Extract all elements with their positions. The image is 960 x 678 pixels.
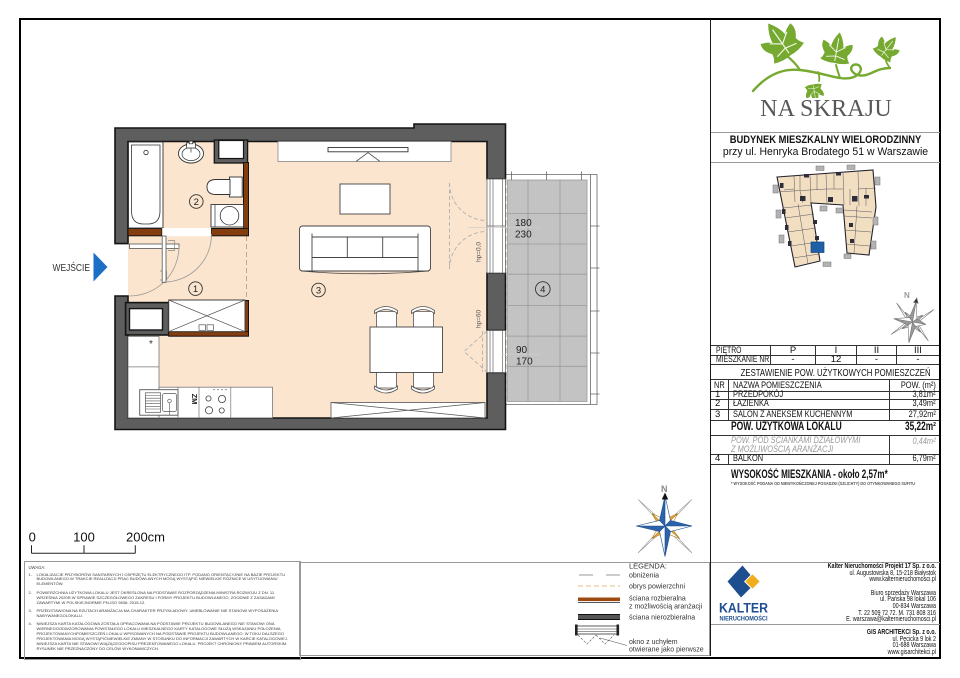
svg-text:otwierane jako pierwsze: otwierane jako pierwsze xyxy=(629,646,704,653)
svg-text:ściana rozbieralna: ściana rozbieralna xyxy=(629,595,686,602)
svg-text:200cm: 200cm xyxy=(126,530,165,545)
svg-text:3: 3 xyxy=(316,286,321,297)
svg-text:0: 0 xyxy=(29,530,36,545)
svg-text:okno z uchyłem: okno z uchyłem xyxy=(629,639,678,646)
svg-text:obrys powierzchni: obrys powierzchni xyxy=(629,583,685,590)
svg-text:4: 4 xyxy=(540,284,545,295)
svg-text:z możliwością aranżacji: z możliwością aranżacji xyxy=(629,603,703,610)
svg-text:WEJŚCIE: WEJŚCIE xyxy=(53,261,91,274)
svg-text:NIERUCHOMOŚCI: NIERUCHOMOŚCI xyxy=(720,616,768,623)
svg-text:N: N xyxy=(661,484,668,494)
svg-text:170: 170 xyxy=(516,357,533,368)
svg-text:1: 1 xyxy=(193,284,198,295)
svg-text:N: N xyxy=(904,291,910,300)
svg-text:2: 2 xyxy=(194,197,199,208)
svg-text:180: 180 xyxy=(515,218,532,229)
svg-text:LEGENDA:: LEGENDA: xyxy=(629,561,667,570)
svg-text:100: 100 xyxy=(73,530,95,545)
svg-text:obniżenia: obniżenia xyxy=(629,572,659,579)
svg-text:hp=0,0: hp=0,0 xyxy=(476,242,483,262)
svg-text:230: 230 xyxy=(515,230,532,241)
svg-text:ściana nierozbieralna: ściana nierozbieralna xyxy=(629,614,695,621)
svg-text:*: * xyxy=(149,339,153,350)
svg-text:hp=60: hp=60 xyxy=(476,309,483,328)
svg-text:ZM: ZM xyxy=(190,394,199,405)
svg-text:KALTER: KALTER xyxy=(719,601,768,616)
svg-text:90: 90 xyxy=(516,345,528,356)
